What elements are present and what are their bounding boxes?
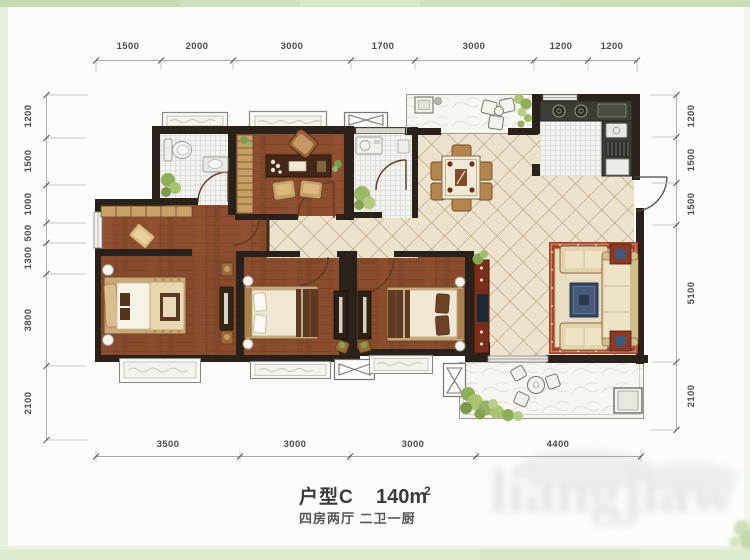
- svg-text:3000: 3000: [281, 41, 304, 52]
- svg-text:3500: 3500: [157, 439, 180, 450]
- svg-text:1200: 1200: [601, 41, 624, 52]
- svg-text:3000: 3000: [463, 41, 486, 52]
- svg-text:5100: 5100: [686, 282, 697, 305]
- svg-text:1500: 1500: [23, 150, 34, 173]
- svg-text:1200: 1200: [23, 105, 34, 128]
- svg-text:500: 500: [23, 224, 34, 241]
- svg-text:户型C: 户型C: [299, 485, 354, 508]
- svg-text:3000: 3000: [402, 439, 425, 450]
- svg-text:2: 2: [424, 484, 431, 498]
- svg-text:1200: 1200: [550, 41, 573, 52]
- svg-text:1500: 1500: [117, 41, 140, 52]
- svg-text:1200: 1200: [686, 105, 697, 128]
- svg-text:四房两厅 二卫一厨: 四房两厅 二卫一厨: [299, 511, 416, 526]
- svg-text:1700: 1700: [372, 41, 395, 52]
- svg-text:3000: 3000: [284, 439, 307, 450]
- svg-text:1000: 1000: [23, 193, 34, 216]
- svg-text:2100: 2100: [23, 392, 34, 415]
- svg-text:4400: 4400: [547, 439, 570, 450]
- svg-text:2000: 2000: [186, 41, 209, 52]
- svg-text:1500: 1500: [686, 149, 697, 172]
- svg-text:3800: 3800: [23, 309, 34, 332]
- svg-text:1300: 1300: [23, 247, 34, 270]
- svg-text:1500: 1500: [686, 193, 697, 216]
- svg-text:2100: 2100: [686, 385, 697, 408]
- svg-text:140m: 140m: [376, 486, 427, 508]
